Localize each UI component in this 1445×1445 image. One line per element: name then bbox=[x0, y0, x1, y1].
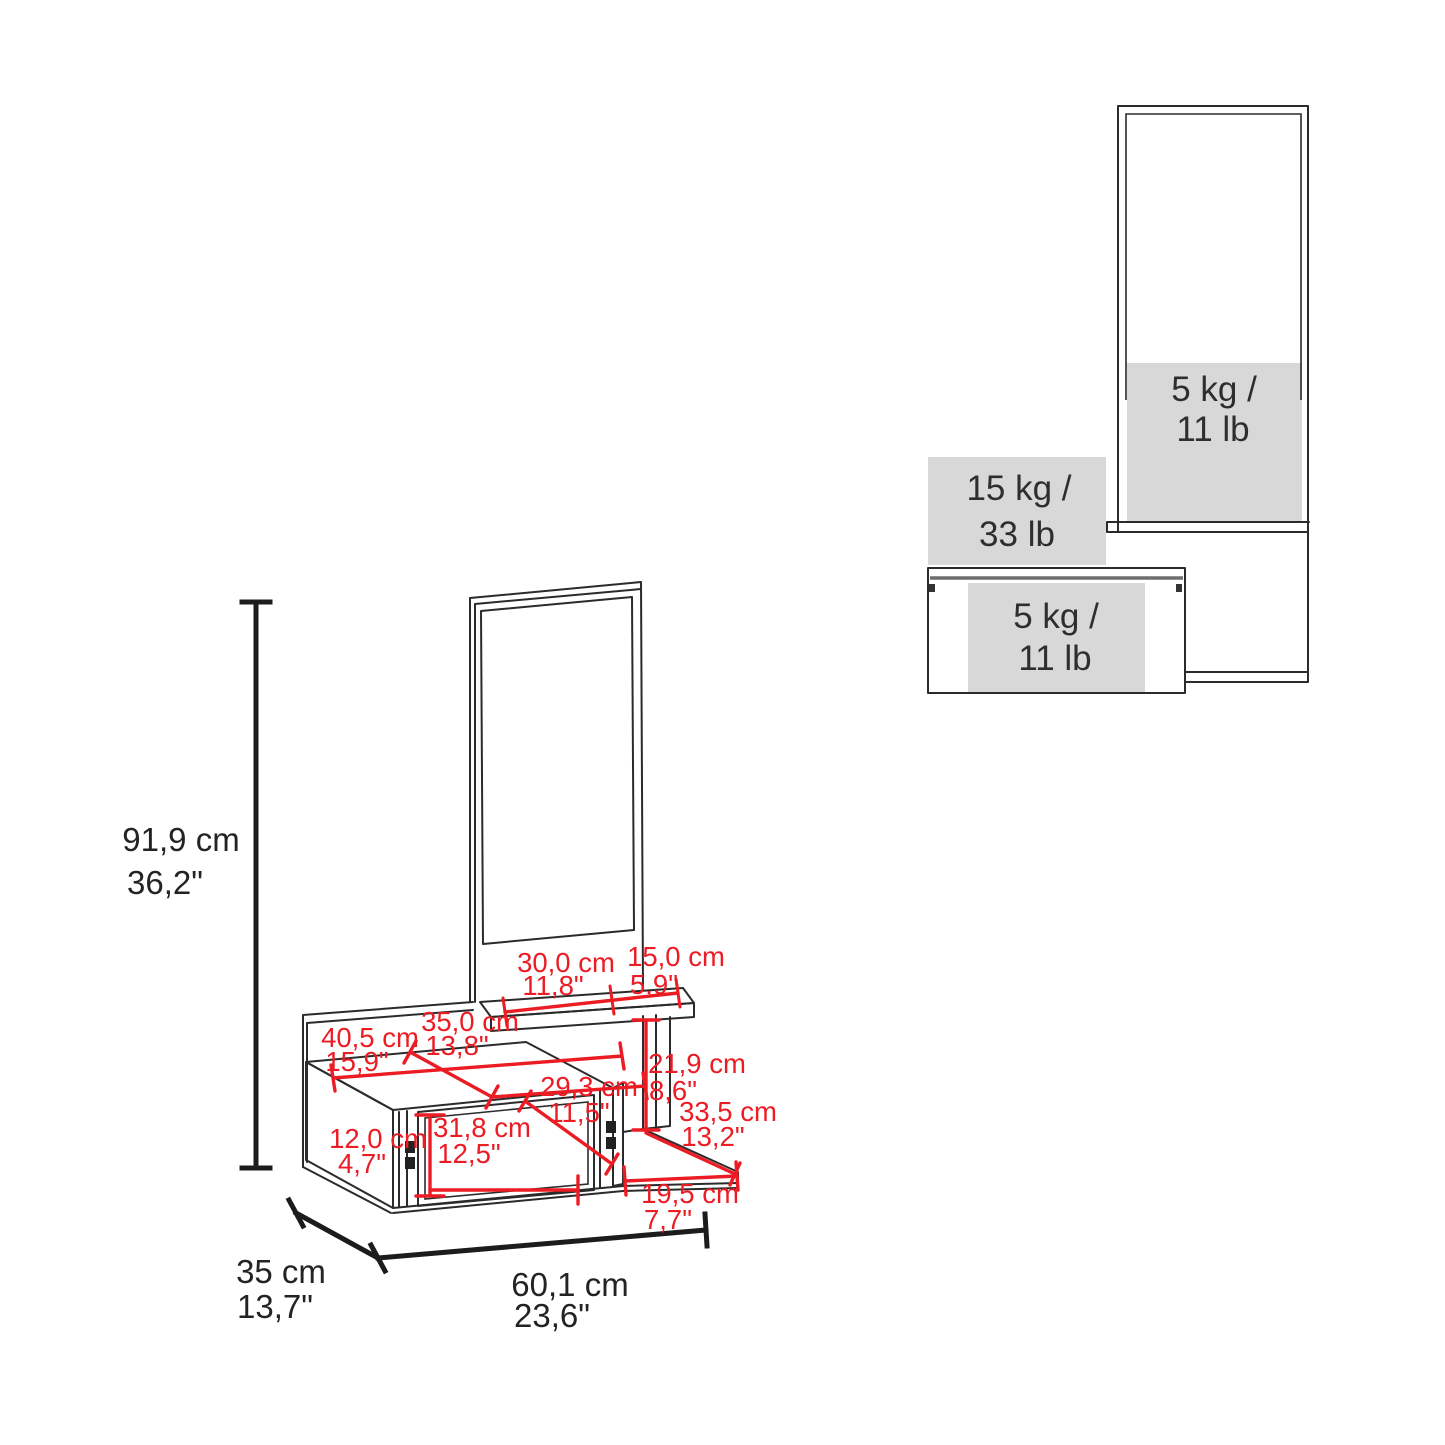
side-shelf-width-label-in: 7,7" bbox=[644, 1204, 692, 1235]
top-shelf-capacity-label-line2: 33 lb bbox=[979, 515, 1055, 554]
top-depth-label-in: 13,8" bbox=[425, 1030, 488, 1061]
top-width-label-in: 15,9" bbox=[325, 1046, 388, 1077]
dimension-line-height bbox=[242, 602, 270, 1168]
shelf-right-label-cm: 15,0 cm bbox=[627, 941, 725, 972]
drawer-width-label-in: 12,5" bbox=[437, 1138, 500, 1169]
shelf-right-label-in: 5,9" bbox=[630, 969, 678, 1000]
mirror-capacity-label-line2: 11 lb bbox=[1176, 410, 1249, 449]
shelf-left-label-in: 11,8" bbox=[522, 970, 583, 1001]
hinge-dot-right bbox=[1176, 584, 1182, 592]
drawer-height-label-in: 4,7" bbox=[338, 1148, 386, 1179]
side-lower-shelf bbox=[1186, 532, 1308, 682]
dim-line-drawer-width bbox=[430, 1176, 578, 1204]
hinge-right-lower bbox=[606, 1137, 616, 1149]
detail-dimension-lines: 30,0 cm 11,8" 15,0 cm 5,9" 35,0 cm 13,8"… bbox=[321, 941, 777, 1235]
width-label-in: 23,6" bbox=[514, 1297, 590, 1334]
drawer-capacity-label-line1: 5 kg / bbox=[1013, 597, 1099, 636]
depth-label-in: 13,7" bbox=[237, 1288, 313, 1325]
hinge-dot-left bbox=[929, 584, 935, 592]
side-shelf-diag-label-in: 13,2" bbox=[681, 1121, 744, 1152]
drawer-opening-label-in: 11,5" bbox=[548, 1097, 609, 1128]
height-label-in: 36,2" bbox=[127, 864, 203, 901]
mirror-glass bbox=[481, 597, 634, 944]
side-view-capacity-diagram: 5 kg / 11 lb 15 kg / 33 lb 5 kg / 11 lb bbox=[928, 106, 1309, 693]
drawer-capacity-label-line2: 11 lb bbox=[1018, 639, 1091, 678]
depth-label-cm: 35 cm bbox=[236, 1253, 326, 1290]
height-label-cm: 91,9 cm bbox=[122, 821, 239, 858]
furniture-dimension-diagram: 5 kg / 11 lb 15 kg / 33 lb 5 kg / 11 lb bbox=[0, 0, 1445, 1445]
overall-dimension-lines: 91,9 cm 36,2" 35 cm 13,7" 60,1 cm 23,6" bbox=[122, 602, 707, 1334]
mirror-capacity-label-line1: 5 kg / bbox=[1171, 370, 1257, 409]
mirror-outline bbox=[470, 582, 643, 1002]
dimension-diagram-page: 5 kg / 11 lb 15 kg / 33 lb 5 kg / 11 lb bbox=[0, 0, 1445, 1445]
hinge-left-lower bbox=[405, 1157, 415, 1169]
top-shelf-capacity-label-line1: 15 kg / bbox=[966, 469, 1071, 508]
top-shelf-front-face bbox=[491, 1003, 694, 1031]
